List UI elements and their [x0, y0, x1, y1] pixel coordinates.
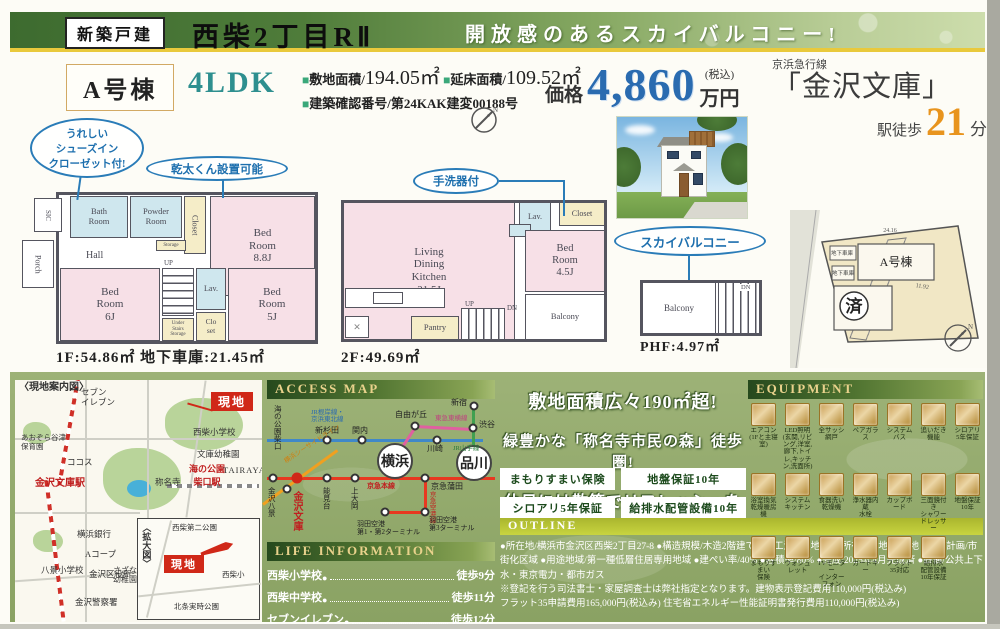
cupboard-icon [887, 473, 912, 496]
outline-line-3: フラット35申請費用165,000円(税込み) 住宅省エネルギー性能証明書発行費… [500, 597, 984, 611]
room-sic: SIC [34, 198, 62, 232]
card-key-icon [853, 536, 878, 559]
price-label: 価格 [545, 80, 583, 107]
spec2-label: 延床面積/ [450, 72, 506, 87]
garage-label: 地下車庫 [831, 249, 854, 257]
life-info-row: 西柴中学校●徒歩11分 [267, 589, 495, 605]
compass-north-label: N [968, 323, 973, 331]
house-door [679, 173, 689, 197]
water-purifier-icon [853, 473, 878, 496]
sold-mark: 済 [846, 296, 864, 316]
walk-unit: 分 [970, 120, 987, 139]
layout-label: 4LDK [188, 66, 276, 100]
caption-2f: 2F:49.69㎡ [341, 346, 420, 367]
life-info-panel: LIFE INFORMATION 西柴小学校●徒歩9分 西柴中学校●徒歩11分 … [267, 542, 495, 627]
station-dot [411, 422, 420, 431]
room-balcony-2f: Balcony [525, 294, 605, 340]
callout-washbasin: 手洗器付 [413, 168, 499, 194]
walk-label: 駅徒歩 [877, 123, 922, 139]
equipment-panel: EQUIPMENT エアコン (1Fと主寝室) LED照明 (玄関,リビング,洋… [748, 380, 983, 588]
map-label: 西柴小 [222, 571, 245, 580]
walk-time: 駅徒歩 21 分 [772, 104, 987, 140]
line-label-seaside: 横浜シーサイドライン [283, 424, 341, 465]
price-unit: 万円 [700, 82, 740, 111]
site-plan: 済 A号棟 地下車庫 地下車庫 24.16 11.92 N [790, 210, 990, 368]
room-bathroom: Bath Room [70, 196, 128, 238]
flyer-page: 新築戸建 西柴2丁目RⅡ 開放感のあるスカイバルコニー! A号棟 4LDK ■敷… [0, 0, 1000, 629]
station-label: 渋谷 [479, 421, 495, 430]
stairs-2f [461, 308, 505, 340]
dimension-label: 24.16 [883, 228, 897, 234]
site-arrow [200, 540, 235, 558]
equipment-item: シロアリ 5年保証 [952, 403, 983, 470]
road [85, 380, 87, 622]
system-bath-icon [887, 403, 912, 426]
pair-glass-icon [853, 403, 878, 426]
site-flag: 現地 [164, 555, 204, 573]
equipment-item: 給排水 配管設備 10年保証 [918, 536, 949, 589]
dishwasher-icon [819, 473, 844, 496]
equipment-item: 食器洗い 乾燥機 [816, 473, 847, 533]
equipment-item: カードキー [850, 536, 881, 589]
access-map-panel: ACCESS MAP 横浜 品川 海の公園 [267, 380, 495, 542]
room-bedroom-5: Bed Room 5J [228, 268, 316, 341]
station-label: 能見台 [322, 487, 330, 510]
equipment-item: 浴室換気 乾燥暖房機 [748, 473, 779, 533]
room-pantry: Pantry [411, 316, 459, 340]
jr-line [267, 439, 483, 442]
room-hall: Hall [86, 250, 103, 261]
equipment-item: 地盤保証 10年 [952, 473, 983, 533]
map-label: 西柴第二公園 [172, 524, 217, 533]
callout-shoes-closet: うれしい シューズイン クローゼット付! [30, 118, 144, 178]
station-block: 京浜急行線 「金沢文庫」 駅徒歩 21 分 [772, 56, 987, 140]
equipment-item: システム キッチン [782, 473, 813, 533]
station-label: 京急蒲田 [431, 483, 463, 492]
stairs-dn-label-2f: DN [507, 304, 517, 312]
road [15, 512, 140, 514]
walk-minutes: 21 [926, 99, 966, 144]
room-bedroom-45: Bed Room 4.5J [525, 230, 605, 292]
equipment-item: エアコン (1Fと主寝室) [748, 403, 779, 470]
room-porch: Porch [22, 240, 54, 288]
station-label: 新宿 [451, 399, 467, 408]
stairs-1f [162, 268, 194, 316]
callout-leader-line [563, 180, 565, 216]
equipment-item: 浄水器内蔵 水栓 [850, 473, 881, 533]
system-kitchen-icon [785, 473, 810, 496]
equipment-item: LED照明 (玄関,リビング,洋室,廊下,トイレ,キッチン,洗面所) [782, 403, 813, 470]
garage-label: 地下車庫 [832, 269, 855, 277]
equipment-item: 三面鏡付き シャワードレッサー [918, 473, 949, 533]
station-dot [381, 508, 390, 517]
callout-leader-line [688, 256, 690, 280]
spec1-value: 194.05㎡ [365, 67, 440, 89]
house-window [667, 151, 679, 159]
stairs-up-label: UP [164, 259, 173, 267]
room-closet-small: Clo set [196, 312, 226, 341]
reheating-icon [921, 403, 946, 426]
callout-sky-balcony: スカイバルコニー [614, 226, 766, 256]
callout-leader-line [499, 180, 565, 182]
station-label: 金沢八景 [267, 487, 275, 517]
station-label: 羽田空港 第3ターミナル [429, 517, 475, 532]
screen-door-icon [819, 403, 844, 426]
plumbing-warranty-icon [921, 536, 946, 559]
station-label: 関内 [352, 427, 368, 436]
station-label: 羽田空港 第1・第2ターミナル [357, 521, 420, 536]
driveway [683, 202, 748, 218]
room-understairs: Under Stairs Storage [162, 318, 194, 341]
room-closet-2f: Closet [559, 202, 605, 226]
led-light-icon [785, 403, 810, 426]
line-label-toyoko: 東急東横線 [435, 415, 468, 422]
stairs-up-label-2f: UP [465, 300, 474, 308]
header-slogan: 開放感のあるスカイバルコニー! [465, 18, 841, 47]
map-label: 北条実時公園 [174, 603, 219, 612]
spec1-label: 敷地面積/ [309, 72, 365, 87]
stairs-dn-label-phf: DN [740, 284, 751, 291]
map-title: 〈現地案内図〉 [19, 382, 89, 394]
scan-edge [987, 0, 1000, 629]
kitchen-sink [373, 292, 403, 304]
area-map: 〈現地案内図〉 現地 金沢文庫駅 海の公園 柴口駅 セブン イレブン 西柴小学校… [15, 380, 262, 622]
station-dot [421, 474, 430, 483]
station-label: 自由が丘 [395, 411, 427, 420]
station-yokohama: 横浜 [377, 443, 413, 479]
map-label: TAIRAYA [223, 466, 262, 476]
map-label: セブン イレブン [81, 388, 115, 408]
inset-title: 〈拡大図〉 [141, 523, 151, 568]
new-build-badge: 新築戸建 [65, 17, 165, 49]
spec-list: ■敷地面積/194.05㎡ ■延床面積/109.52㎡ ■建築確認番号/第24K… [302, 62, 581, 115]
warranty-badge: 地盤保証10年 [621, 468, 746, 490]
room-sky-balcony: Balcony [642, 282, 716, 334]
equipment-item: TVモニター インターフォン [816, 536, 847, 589]
room-closet: Closet [184, 196, 206, 254]
equipment-item: システムバス [884, 403, 915, 470]
spec-line-1: ■敷地面積/194.05㎡ ■延床面積/109.52㎡ [302, 62, 581, 94]
line-label-keikyu: 京急本線 [367, 483, 395, 491]
equipment-item: 追いだき機能 [918, 403, 949, 470]
highlight-line-2: 緑豊かな「称名寺市民の森」徒歩圏! [500, 430, 746, 472]
equipment-header: EQUIPMENT [748, 380, 983, 399]
equipment-item: ペアガラス [850, 403, 881, 470]
facility-name: 西柴小学校 [267, 567, 322, 583]
map-label: 金沢警察署 [75, 598, 118, 608]
price-block: 価格 4,860 (税込) 万円 [545, 58, 740, 111]
highlight-line-1: 敷地面積広々190㎡超! [500, 388, 746, 414]
life-info-header: LIFE INFORMATION [267, 542, 495, 561]
aircon-icon [751, 403, 776, 426]
road [138, 583, 261, 598]
unit-label: A号棟 [66, 64, 174, 111]
room-bedroom-6: Bed Room 6J [60, 268, 160, 341]
site-flag: 現地 [211, 392, 253, 411]
equipment-grid: エアコン (1Fと主寝室) LED照明 (玄関,リビング,洋室,廊下,トイレ,キ… [748, 403, 983, 588]
washlet-icon [785, 536, 810, 559]
caption-phf: PHF:4.97㎡ [640, 336, 720, 356]
station-dot [358, 436, 367, 445]
toyoko-line [415, 425, 473, 431]
station-dot [470, 402, 479, 411]
house-rendering [616, 116, 748, 219]
price-amount: 4,860 [587, 58, 696, 111]
flat35-icon [887, 536, 912, 559]
station-label-red: 海の公園 柴口駅 [189, 462, 225, 488]
map-label: 西柴小学校 [193, 428, 236, 438]
equipment-item: ウォシュレット [782, 536, 813, 589]
station-label-bunko: 金沢文庫 [291, 491, 302, 531]
floorplan-phf: スカイバルコニー Balcony DN PHF:4.97㎡ [612, 222, 777, 350]
park-area [33, 530, 63, 552]
map-label: 文庫幼稚園 [197, 450, 240, 460]
line-label-jr: JR根岸線・ 京浜東北線 [311, 409, 344, 423]
tree [721, 143, 748, 185]
map-label: 八景小学校 [41, 566, 84, 576]
stairs-phf [718, 282, 760, 334]
station-dot [351, 474, 360, 483]
life-info-row: 西柴小学校●徒歩9分 [267, 567, 495, 583]
walk-time: 徒歩9分 [457, 567, 496, 583]
equipment-item: まもりすまい 保険 [748, 536, 779, 589]
station-dot-kanazawa-bunko [292, 473, 303, 484]
termite-warranty-icon [955, 403, 980, 426]
room-powder: Powder Room [130, 196, 182, 238]
ground-warranty-icon [955, 473, 980, 496]
map-label: ココス [67, 458, 93, 468]
home-insurance-icon [751, 536, 776, 559]
station-label: 上大岡 [350, 487, 358, 510]
caption-1f: 1F:54.86㎡ 地下車庫:21.45㎡ [56, 346, 265, 367]
callout-leader-line [222, 180, 224, 198]
room-lavatory: Lav. [196, 268, 226, 310]
dotted-leader [330, 579, 453, 580]
equipment-item: 全サッシ網戸 [816, 403, 847, 470]
facility-name: 西柴中学校 [267, 589, 322, 605]
station-label: 川崎 [427, 445, 443, 454]
callout-dryer: 乾太くん設置可能 [146, 156, 288, 181]
station-label: 海の公園柴口 [273, 405, 281, 450]
station-label-red: 金沢文庫駅 [35, 474, 85, 489]
access-map-header: ACCESS MAP [267, 380, 495, 399]
road [147, 380, 149, 518]
kitchen-hatch-box: ✕ [345, 316, 369, 338]
map-inset: 〈拡大図〉 西柴第二公園 現地 西柴小 北条実時公園 [137, 518, 260, 620]
map-label: あおぞら谷津 保育園 [21, 434, 66, 451]
station-dot [469, 424, 478, 433]
map-label: Aコープ [85, 550, 116, 560]
house-window [691, 151, 701, 159]
warranty-badge: まもりすまい保険 [500, 468, 615, 490]
price-tax-note: (税込) [705, 66, 734, 82]
tv-intercom-icon [819, 536, 844, 559]
map-label: 横浜銀行 [77, 530, 111, 540]
equipment-item: カップボード [884, 473, 915, 533]
page-title: 西柴2丁目RⅡ [192, 15, 374, 54]
map-label: 称名寺 [155, 478, 181, 488]
scan-edge [0, 624, 1000, 629]
cloud [625, 125, 655, 135]
house-window [693, 173, 703, 185]
floorplan-2f: 手洗器付 Living Dining Kitchen 21.5J ✕ Lav. … [333, 112, 618, 367]
floorplan-1f: うれしい シューズイン クローゼット付! 乾太くん設置可能 Bath Room … [18, 112, 333, 367]
site-building-label: A号棟 [880, 254, 913, 269]
header-bar: 新築戸建 西柴2丁目RⅡ 開放感のあるスカイバルコニー! [10, 12, 985, 52]
equipment-item: フラット35対応 [884, 536, 915, 589]
line-label-yamanote: JR山手線 [453, 445, 479, 452]
mirror-dresser-icon [921, 473, 946, 496]
station-dot [323, 474, 332, 483]
room-storage: Storage [156, 240, 186, 251]
dotted-leader [330, 601, 448, 602]
bath-dryer-icon [751, 473, 776, 496]
station-dot [269, 474, 278, 483]
rail-line-name: 京浜急行線 [772, 56, 987, 72]
walk-time: 徒歩11分 [452, 589, 495, 605]
access-map-diagram: 横浜 品川 海の公園柴口 JR根岸線・ 京浜東北線 新杉田 関内 川崎 自由が丘… [267, 399, 495, 543]
